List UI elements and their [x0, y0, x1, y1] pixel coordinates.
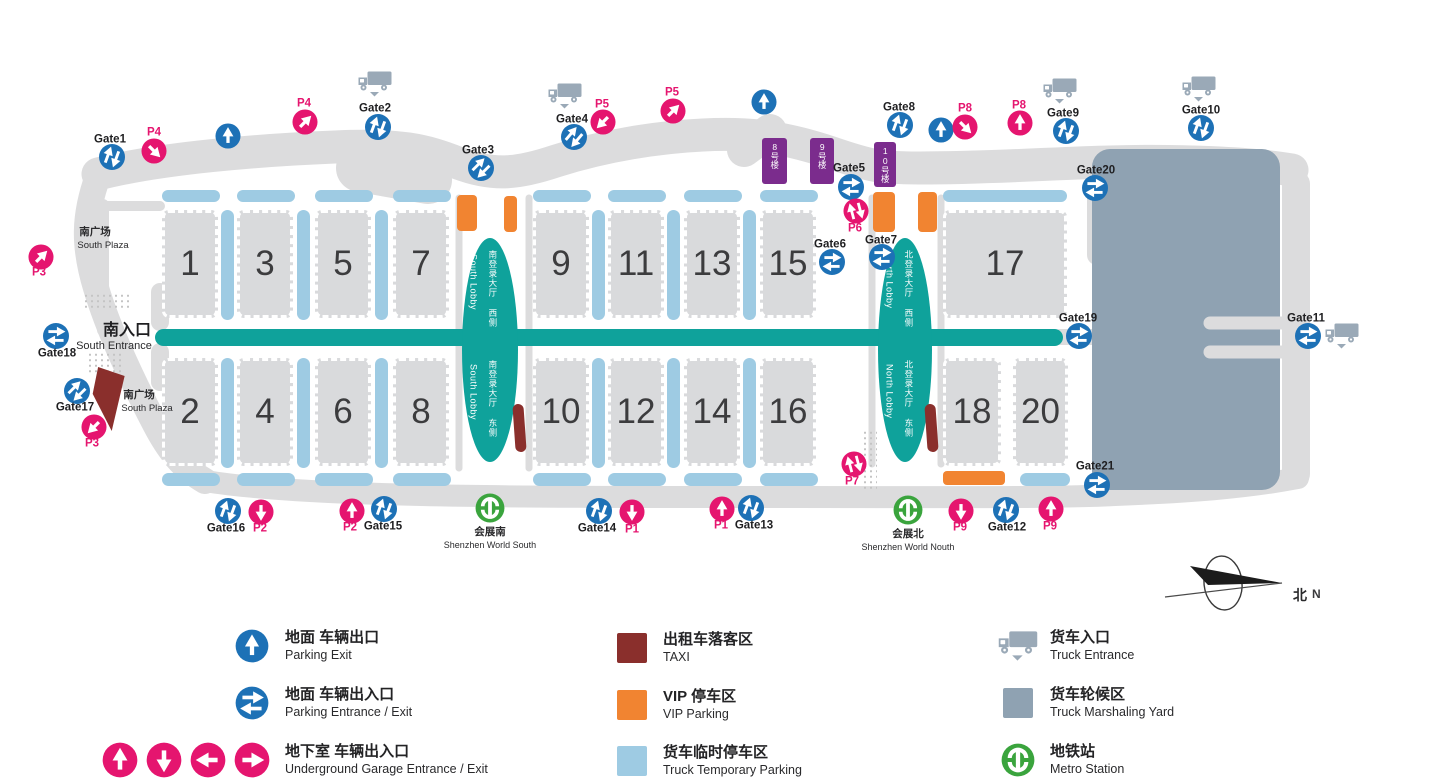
underground-garage-entrance-exit-icon: [841, 451, 867, 477]
legend-label-en: Parking Entrance / Exit: [285, 705, 412, 721]
gate-entrance-exit-icon: [1295, 323, 1322, 350]
legend-item-text: 货车临时停车区Truck Temporary Parking: [663, 744, 802, 778]
truck-temp-parking-strip: [943, 190, 1067, 202]
gate-label: Gate20: [1077, 165, 1115, 178]
metro-station-label-zh: 会展南: [474, 527, 506, 539]
south-entrance-label-zh: 南入口: [103, 322, 151, 340]
gate-entrance-exit-icon: [468, 155, 495, 182]
parking-area-label: P6: [848, 223, 862, 236]
gate-entrance-exit-icon: [819, 249, 846, 276]
gate-entrance-exit-icon: [1053, 118, 1080, 145]
gate-label: Gate12: [988, 522, 1026, 535]
lobby-label-zh: 南登录大厅 西侧: [488, 250, 497, 328]
legend-vip-swatch: [617, 690, 647, 720]
hall-number: 20: [1021, 392, 1060, 432]
gate-label: Gate15: [364, 521, 402, 534]
legend-item-text: 地面 车辆出入口Parking Entrance / Exit: [285, 686, 412, 720]
gate-entrance-exit-icon: [887, 112, 914, 139]
legend-metro-station-icon: [1001, 743, 1035, 777]
gate-entrance-exit-icon: [561, 124, 588, 151]
truck-temp-parking-strip: [297, 210, 310, 320]
parking-area-label: P4: [297, 98, 311, 111]
south-entrance-label-en: South Entrance: [76, 340, 152, 352]
hall-number: 11: [618, 244, 654, 284]
truck-entrance-icon: [357, 70, 393, 98]
truck-temp-parking-strip: [162, 190, 220, 202]
gate-label: Gate6: [814, 239, 846, 252]
legend-label-zh: 地铁站: [1050, 743, 1124, 762]
building-label: 8号楼: [770, 142, 779, 169]
legend-label-zh: 出租车落客区: [663, 631, 753, 650]
metro-station-label-en: Shenzhen World South: [444, 541, 536, 551]
legend-label-zh: 货车临时停车区: [663, 744, 802, 763]
truck-temp-parking-strip: [393, 190, 451, 202]
plaza-label-zh: 南广场: [123, 390, 155, 402]
gate-label: Gate2: [359, 103, 391, 116]
truck-temp-parking-strip: [684, 190, 742, 202]
truck-temp-parking-strip: [237, 190, 295, 202]
truck-temp-parking-strip: [237, 473, 295, 486]
legend-label-zh: 货车轮候区: [1050, 686, 1174, 705]
hall-6: 6: [315, 358, 371, 466]
legend-label-zh: 地下室 车辆出入口: [285, 743, 488, 762]
hall-number: 16: [769, 392, 808, 432]
legend-parking-exit-icon: [235, 629, 269, 663]
underground-garage-icon: [339, 498, 365, 524]
north-lobby: North Lobby北登录大厅 西侧North Lobby北登录大厅 东侧: [878, 238, 932, 462]
hall-number: 10: [542, 392, 581, 432]
metro-station-icon: [893, 495, 923, 525]
gate-label: Gate16: [207, 523, 245, 536]
parking-exit-icon: [928, 117, 954, 143]
south-lobby: South Lobby南登录大厅 西侧South Lobby南登录大厅 东侧: [462, 238, 518, 462]
hall-number: 13: [693, 244, 732, 284]
venue-map-page: 北 N 南入口 South Entrance 13579111315172468…: [0, 0, 1430, 782]
vip-parking-zone: [918, 192, 937, 232]
lobby-label-zh: 北登录大厅 东侧: [904, 360, 913, 438]
truck-temp-parking-strip: [667, 210, 680, 320]
hall-number: 5: [333, 244, 352, 284]
gate-label: Gate10: [1182, 105, 1220, 118]
truck-temp-parking-strip: [760, 473, 818, 486]
truck-temp-parking-strip: [533, 190, 591, 202]
legend-truckpark-swatch: [617, 746, 647, 776]
gate-entrance-exit-icon: [993, 497, 1020, 524]
hall-number: 4: [255, 392, 274, 432]
gate-entrance-exit-icon: [586, 498, 613, 525]
legend-taxi-swatch: [617, 633, 647, 663]
lobby-label-en: South Lobby: [468, 254, 477, 310]
gate-label: Gate3: [462, 145, 494, 158]
hall-number: 3: [255, 244, 274, 284]
underground-garage-icon: [292, 109, 318, 135]
hall-7: 7: [393, 210, 449, 318]
legend-truck-entrance-icon: [997, 630, 1039, 663]
legend-item-text: 货车入口Truck Entrance: [1050, 629, 1134, 663]
truck-temp-parking-strip: [743, 210, 756, 320]
parking-area-label: P4: [147, 127, 161, 140]
hall-17: 17: [943, 210, 1067, 318]
lobby-label-zh: 南登录大厅 东侧: [488, 360, 497, 438]
truck-temp-parking-strip: [375, 358, 388, 468]
plaza-label-en: South Plaza: [121, 404, 172, 414]
truck-temp-parking-strip: [684, 473, 742, 486]
truck-temp-parking-strip: [533, 473, 591, 486]
hall-4: 4: [237, 358, 293, 466]
metro-station-icon: [475, 493, 505, 523]
compass-north-letter: N: [1312, 587, 1321, 601]
parking-area-label: P2: [343, 522, 357, 535]
hall-number: 8: [411, 392, 430, 432]
hall-9: 9: [533, 210, 589, 318]
hall-number: 14: [693, 392, 732, 432]
underground-garage-icon: [619, 499, 645, 525]
underground-garage-icon: [590, 109, 616, 135]
legend-item-text: 出租车落客区TAXI: [663, 631, 753, 665]
hall-number: 7: [411, 244, 430, 284]
gate-entrance-exit-icon: [43, 323, 70, 350]
plaza-label-en: South Plaza: [77, 241, 128, 251]
hall-10: 10: [533, 358, 589, 466]
gate-label: Gate11: [1287, 313, 1325, 326]
legend-item-text: 地铁站Metro Station: [1050, 743, 1124, 777]
parking-area-label: P3: [85, 438, 99, 451]
compass-icon: [1160, 548, 1340, 620]
truck-temp-parking-strip: [221, 210, 234, 320]
legend-underground-garage-icon: [102, 742, 138, 778]
underground-garage-icon: [948, 498, 974, 524]
hall-number: 2: [180, 392, 199, 432]
building-label: 10号楼: [881, 146, 890, 183]
parking-area-label: P1: [625, 524, 639, 537]
compass-north-zh: 北: [1293, 585, 1307, 605]
truck-temp-parking-strip: [592, 358, 605, 468]
parking-area-label: P2: [253, 523, 267, 536]
parking-exit-icon: [751, 89, 777, 115]
hall-15: 15: [760, 210, 816, 318]
parking-area-label: P7: [845, 476, 859, 489]
gate-label: Gate14: [578, 523, 616, 536]
hall-3: 3: [237, 210, 293, 318]
gate-label: Gate7: [865, 235, 897, 248]
truck-temp-parking-strip: [297, 358, 310, 468]
gate-label: Gate1: [94, 134, 126, 147]
truck-temp-parking-strip: [221, 358, 234, 468]
gate-entrance-exit-icon: [99, 144, 126, 171]
vip-parking-zone: [873, 192, 895, 232]
legend-label-en: Truck Marshaling Yard: [1050, 705, 1174, 721]
parking-area-label: P3: [32, 267, 46, 280]
parking-area-label: P5: [595, 99, 609, 112]
underground-garage-entrance-exit-icon: [843, 198, 869, 224]
underground-garage-icon: [709, 496, 735, 522]
gate-label: Gate19: [1059, 313, 1097, 326]
truck-temp-parking-strip: [393, 473, 451, 486]
hall-number: 9: [551, 244, 570, 284]
hall-5: 5: [315, 210, 371, 318]
gate-label: Gate21: [1076, 461, 1114, 474]
legend-label-zh: VIP 停车区: [663, 688, 736, 707]
gate-entrance-exit-icon: [869, 244, 896, 271]
hall-number: 12: [617, 392, 656, 432]
vip-parking-zone: [457, 195, 477, 231]
hall-number: 17: [986, 244, 1025, 284]
truck-temp-parking-strip: [375, 210, 388, 320]
legend-label-en: Truck Temporary Parking: [663, 763, 802, 779]
gate-entrance-exit-icon: [1188, 115, 1215, 142]
lobby-label-en: South Lobby: [468, 364, 477, 420]
legend-label-en: Parking Exit: [285, 648, 379, 664]
gate-label: Gate5: [833, 163, 865, 176]
legend-label-zh: 地面 车辆出口: [285, 629, 379, 648]
gate-label: Gate4: [556, 114, 588, 127]
parking-area-label: P8: [1012, 100, 1026, 113]
parking-exit-icon: [215, 123, 241, 149]
underground-garage-icon: [248, 499, 274, 525]
building-9号楼: 9号楼: [810, 138, 834, 184]
gate-label: Gate18: [38, 348, 76, 361]
legend-underground-garage-icon: [146, 742, 182, 778]
truck-temp-parking-strip: [608, 473, 666, 486]
underground-garage-icon: [660, 98, 686, 124]
hall-11: 11: [608, 210, 664, 318]
underground-garage-icon: [1038, 496, 1064, 522]
hall-13: 13: [684, 210, 740, 318]
hall-8: 8: [393, 358, 449, 466]
truck-temp-parking-strip: [315, 473, 373, 486]
truck-temp-parking-strip: [315, 190, 373, 202]
legend-label-en: Underground Garage Entrance / Exit: [285, 762, 488, 778]
truck-temp-parking-strip: [1020, 473, 1070, 486]
legend-parking-entrance-exit-icon: [235, 686, 269, 720]
legend-label-en: TAXI: [663, 650, 753, 666]
legend-label-zh: 货车入口: [1050, 629, 1134, 648]
truck-temp-parking-strip: [743, 358, 756, 468]
plaza-label-zh: 南广场: [79, 227, 111, 239]
legend-label-en: VIP Parking: [663, 707, 736, 723]
building-label: 9号楼: [818, 142, 827, 169]
metro-station-label-en: Shenzhen World Nouth: [862, 543, 955, 553]
hall-1: 1: [162, 210, 218, 318]
metro-station-label-zh: 会展北: [892, 529, 924, 541]
gate-entrance-exit-icon: [838, 174, 865, 201]
gate-label: Gate13: [735, 520, 773, 533]
gate-label: Gate9: [1047, 108, 1079, 121]
parking-area-label: P5: [665, 87, 679, 100]
hall-14: 14: [684, 358, 740, 466]
parking-area-label: P1: [714, 520, 728, 533]
gate-entrance-exit-icon: [1066, 323, 1093, 350]
hall-number: 18: [953, 392, 992, 432]
legend-label-zh: 地面 车辆出入口: [285, 686, 412, 705]
truck-entrance-icon: [1042, 77, 1078, 105]
truck-entrance-icon: [1324, 322, 1360, 350]
underground-garage-icon: [1007, 110, 1033, 136]
gate-entrance-exit-icon: [738, 495, 765, 522]
truck-entrance-icon: [547, 82, 583, 110]
gate-entrance-exit-icon: [1082, 175, 1109, 202]
hall-number: 1: [180, 244, 199, 284]
truck-temp-parking-strip: [608, 190, 666, 202]
legend-underground-garage-icon: [234, 742, 270, 778]
hall-number: 6: [333, 392, 352, 432]
building-10号楼: 10号楼: [874, 142, 896, 187]
legend-yard-swatch: [1003, 688, 1033, 718]
truck-temp-parking-strip: [162, 473, 220, 486]
gate-entrance-exit-icon: [64, 378, 91, 405]
pavement-dots: [83, 293, 131, 308]
truck-temp-parking-strip: [760, 190, 818, 202]
legend-underground-garage-icon: [190, 742, 226, 778]
underground-garage-icon: [141, 138, 167, 164]
underground-garage-icon: [952, 114, 978, 140]
hall-12: 12: [608, 358, 664, 466]
legend-item-text: 地面 车辆出口Parking Exit: [285, 629, 379, 663]
legend-item-text: VIP 停车区VIP Parking: [663, 688, 736, 722]
hall-16: 16: [760, 358, 816, 466]
truck-entrance-icon: [1181, 75, 1217, 103]
lobby-label-en: North Lobby: [884, 364, 893, 419]
vip-parking-zone: [504, 196, 517, 232]
truck-temp-parking-strip: [592, 210, 605, 320]
building-8号楼: 8号楼: [762, 138, 787, 184]
parking-area-label: P8: [958, 103, 972, 116]
legend-label-en: Metro Station: [1050, 762, 1124, 778]
hall-18: 18: [943, 358, 1001, 466]
legend-item-text: 地下室 车辆出入口Underground Garage Entrance / E…: [285, 743, 488, 777]
gate-label: Gate17: [56, 402, 94, 415]
truck-temp-parking-strip: [667, 358, 680, 468]
lobby-label-zh: 北登录大厅 西侧: [904, 250, 913, 328]
gate-entrance-exit-icon: [1084, 472, 1111, 499]
gate-label: Gate8: [883, 102, 915, 115]
vip-parking-zone: [943, 471, 1005, 485]
legend-item-text: 货车轮候区Truck Marshaling Yard: [1050, 686, 1174, 720]
underground-garage-icon: [81, 414, 107, 440]
hall-number: 15: [769, 244, 808, 284]
gate-entrance-exit-icon: [215, 498, 242, 525]
parking-area-label: P9: [1043, 521, 1057, 534]
hall-20: 20: [1013, 358, 1068, 466]
gate-entrance-exit-icon: [365, 114, 392, 141]
gate-entrance-exit-icon: [371, 496, 398, 523]
legend-label-en: Truck Entrance: [1050, 648, 1134, 664]
parking-area-label: P9: [953, 522, 967, 535]
